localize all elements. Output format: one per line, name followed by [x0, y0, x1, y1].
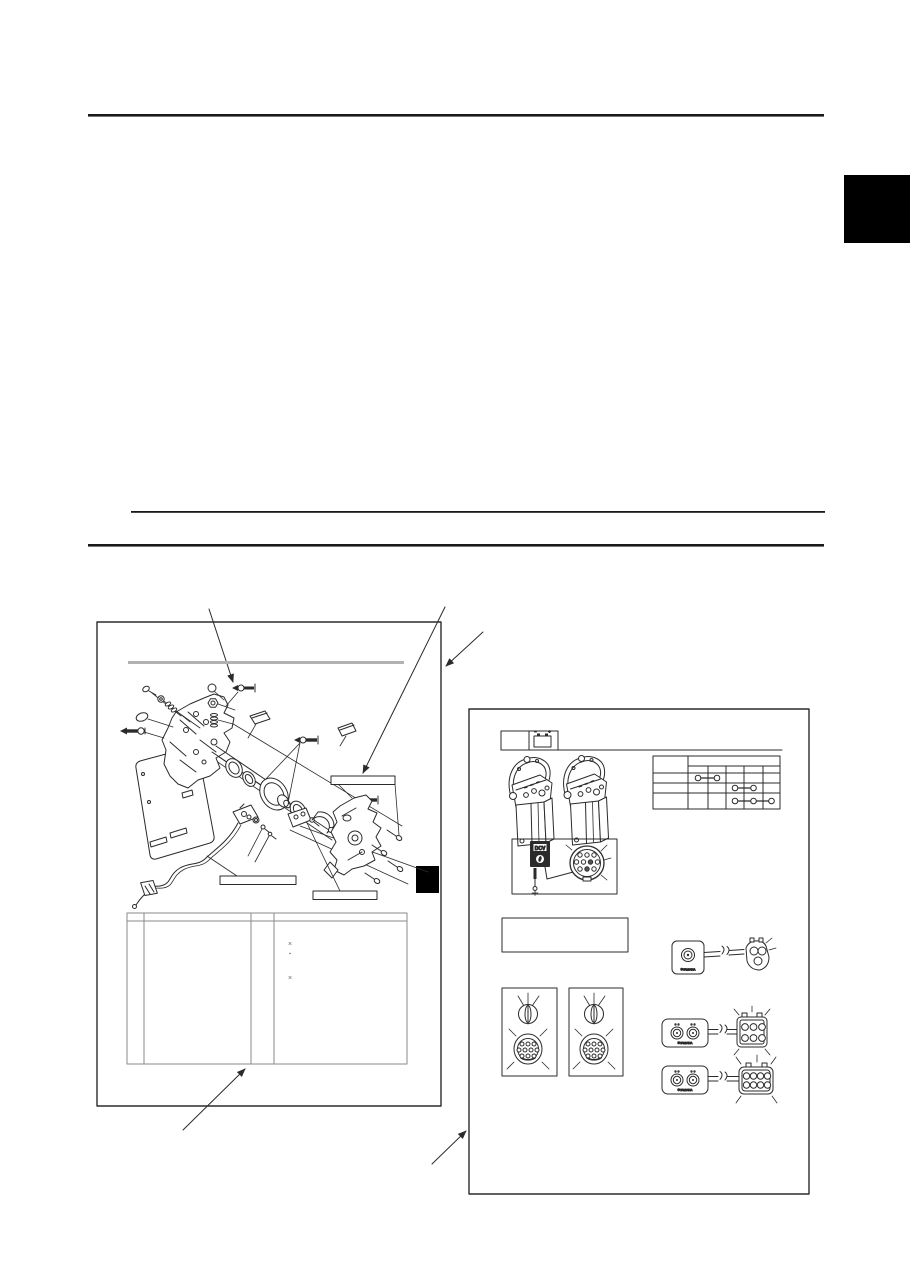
highlighted-bolt-top — [226, 684, 255, 706]
key-switch-figure-right — [569, 988, 623, 1076]
side-cover-housing — [324, 795, 381, 878]
highlight-square — [416, 866, 439, 893]
callout-rect — [502, 918, 628, 952]
label-box-right — [331, 776, 395, 785]
remote-control-unit-right — [564, 756, 609, 846]
meter-probes — [532, 867, 577, 896]
label-box-bottom-center — [313, 891, 377, 900]
leader-arrow-parts-table — [183, 1069, 245, 1130]
bracket-top-center — [248, 711, 270, 738]
shaft-and-rings — [212, 746, 334, 833]
switch-connector-diagram-3: ©YAMAHA — [662, 1055, 777, 1103]
table-mark-3: × — [288, 975, 292, 982]
exploded-diagram — [120, 684, 428, 909]
brand-label-1: ©YAMAHA — [681, 968, 696, 972]
leader-arrow-top-bolt — [209, 609, 233, 682]
parts-figure-border — [97, 622, 441, 1106]
cable-break-3 — [708, 1072, 739, 1082]
table-mark-2: ▪ — [289, 951, 291, 957]
leader-arrow-figure-border — [446, 632, 483, 666]
switch-connector-diagram-1: ©YAMAHA — [672, 938, 776, 974]
page-rules — [88, 114, 910, 547]
section-rule-lower — [88, 544, 824, 547]
brand-label-3: ©YAMAHA — [678, 1088, 693, 1092]
leader-arrow-label-box — [363, 607, 445, 773]
manual-page: × ▪ × − + — [0, 0, 910, 1286]
battery-legend: − + — [501, 729, 782, 750]
meter-display-label: DCV — [535, 846, 546, 852]
cable-break-2 — [708, 1025, 737, 1035]
switch-connector-diagram-2: ©YAMAHA — [662, 1006, 770, 1055]
three-pin-connector-icon — [746, 938, 776, 970]
section-rule-upper — [131, 511, 825, 513]
label-box-bottom-left — [220, 876, 296, 885]
round-connector-icon — [566, 845, 611, 881]
key-switch-figure-left — [502, 988, 557, 1076]
electrical-figure: − + — [469, 709, 809, 1194]
top-rule — [88, 114, 824, 117]
bracket-center — [338, 723, 356, 746]
eight-pin-connector-icon — [736, 1055, 777, 1103]
parts-table-marks: × ▪ × — [288, 941, 292, 982]
highlighted-bolt-left — [120, 728, 164, 739]
parts-table — [127, 913, 407, 1064]
dcv-meter-icon: DCV — [530, 841, 550, 867]
continuity-table — [653, 756, 780, 809]
leader-arrow-electrical-box — [432, 1131, 466, 1164]
six-pin-connector-icon — [734, 1006, 770, 1055]
brand-label-2: ©YAMAHA — [678, 1041, 693, 1045]
page-artwork: × ▪ × − + — [0, 0, 910, 1286]
table-mark-1: × — [288, 941, 292, 948]
parts-table-border — [127, 913, 407, 1064]
voltmeter-test-figure: DCV — [512, 839, 617, 896]
cable-break-1 — [704, 946, 744, 957]
figure-title-bar — [128, 661, 404, 664]
chapter-thumb-tab — [844, 175, 910, 243]
remote-control-unit-left — [509, 757, 554, 847]
continuity-row-3 — [732, 798, 774, 804]
parts-figure: × ▪ × — [97, 622, 441, 1106]
